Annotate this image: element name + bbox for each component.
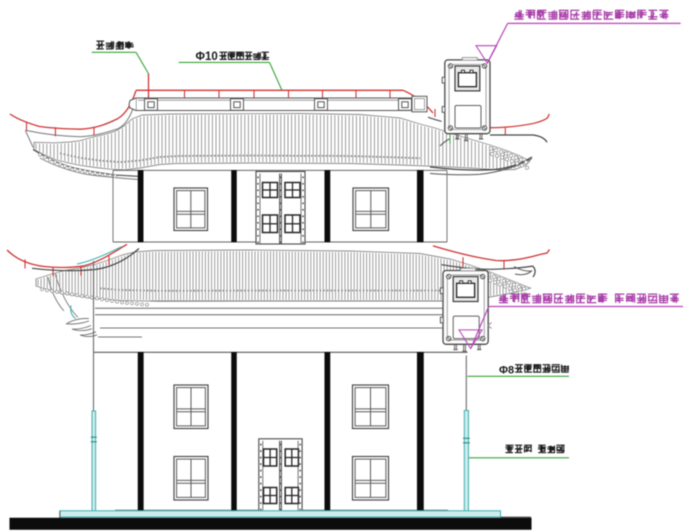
svg-text:Φ10: Φ10 — [196, 51, 218, 63]
svg-text:Φ8: Φ8 — [499, 365, 514, 377]
